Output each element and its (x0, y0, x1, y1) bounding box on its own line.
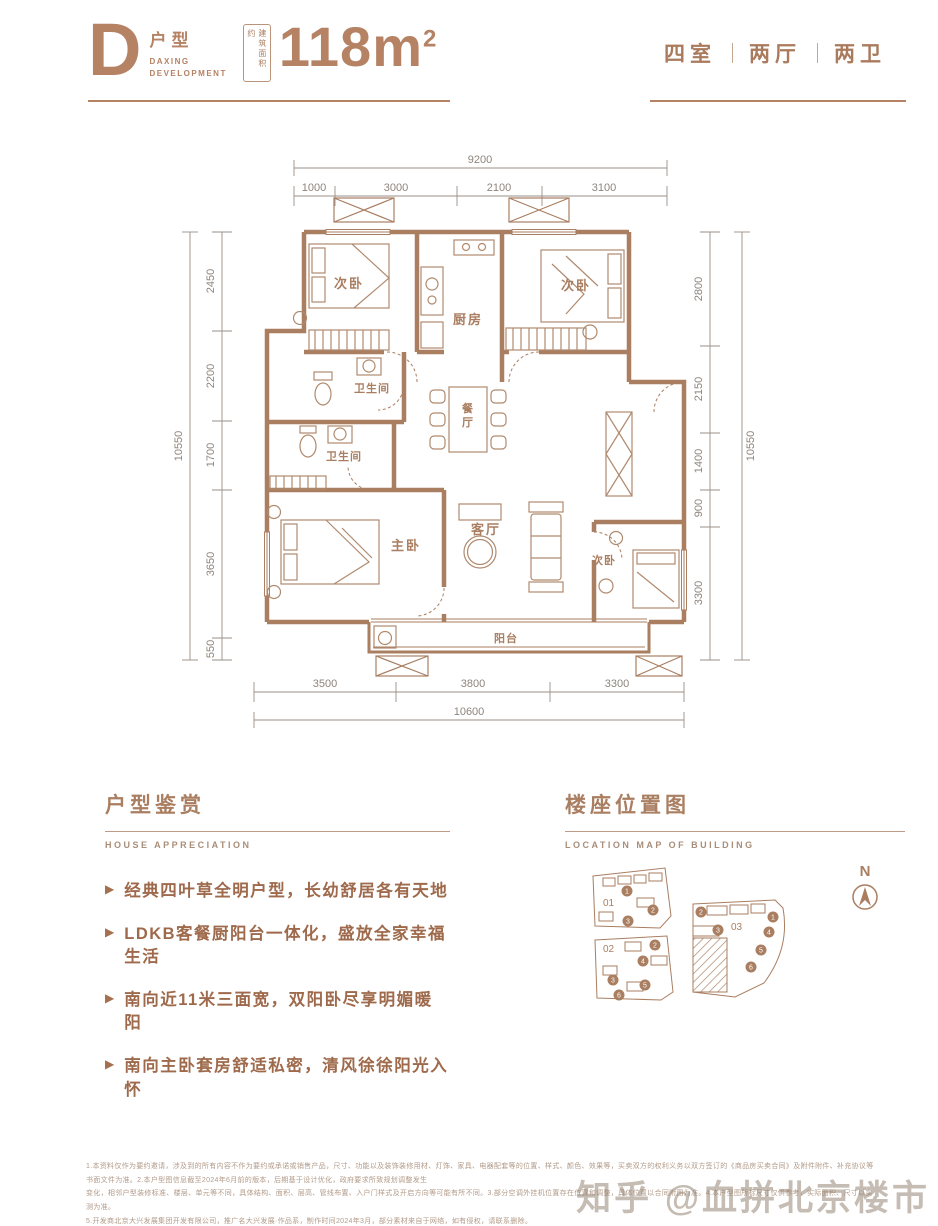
bullet-arrow-icon: ▶ (105, 989, 114, 1008)
parcel-01-label: 01 (603, 898, 615, 909)
area-value: 118m2 (279, 16, 438, 78)
dim-top-total: 9200 (468, 154, 492, 166)
appreciation-title: 户型鉴赏 (105, 789, 450, 819)
dim-right-4: 900 (693, 499, 705, 517)
bottom-sections: 户型鉴赏 HOUSE APPRECIATION ▶经典四叶草全明户型，长幼舒居各… (0, 789, 938, 1122)
room-dining-char1: 餐 (461, 401, 474, 415)
dim-right-2: 2150 (693, 377, 705, 401)
badge: 5 (643, 983, 647, 990)
room-bedroom-bottom-right: 次卧 (592, 553, 616, 567)
room-dining-char2: 厅 (462, 416, 474, 429)
badge: 2 (651, 908, 655, 915)
spec-rooms: 四室 (648, 38, 732, 68)
unit-letter: D (88, 16, 139, 84)
header: D 户型 DAXING DEVELOPMENT 建筑面积约 118m2 四室 两… (0, 0, 938, 118)
dim-top-3: 2100 (487, 182, 511, 194)
appreciation-point: ▶南向近11米三面宽，双阳卧尽享明媚暖阳 (105, 989, 450, 1035)
compass-north-label: N (860, 864, 871, 880)
spec-baths: 两卫 (818, 38, 902, 68)
dim-bottom-3: 3300 (605, 678, 629, 690)
point-text: 经典四叶草全明户型，长幼舒居各有天地 (124, 880, 448, 903)
dim-top-1: 1000 (302, 182, 326, 194)
dim-left-total: 10550 (173, 431, 185, 462)
location-rule (565, 831, 905, 832)
appreciation-point: ▶经典四叶草全明户型，长幼舒居各有天地 (105, 880, 450, 903)
floor-plan: 9200 1000 3000 2100 3100 10550 2450 2200… (0, 140, 938, 761)
floor-plan-svg: 9200 1000 3000 2100 3100 10550 2450 2200… (139, 140, 799, 756)
room-bath-upper: 卫生间 (354, 381, 390, 395)
room-balcony: 阳台 (494, 631, 518, 645)
brand-line2: DEVELOPMENT (149, 68, 226, 80)
badge: 3 (716, 928, 720, 935)
dim-right-total: 10550 (745, 431, 757, 462)
parcel-01-badges: 1 2 3 (622, 886, 659, 927)
brand-name: DAXING DEVELOPMENT (149, 56, 226, 80)
header-rule-left (88, 100, 450, 102)
dim-bottom-total: 10600 (454, 706, 485, 718)
dim-top-2: 3000 (384, 182, 408, 194)
dim-right-5: 3300 (693, 581, 705, 605)
dim-bottom-1: 3500 (313, 678, 337, 690)
point-text: 南向主卧套房舒适私密，清风徐徐阳光入怀 (124, 1055, 450, 1101)
header-rule-right (650, 100, 906, 102)
point-text: 南向近11米三面宽，双阳卧尽享明媚暖阳 (124, 989, 450, 1035)
room-master: 主卧 (391, 538, 421, 553)
area-badge: 建筑面积约 (243, 24, 271, 82)
area-superscript: 2 (423, 25, 437, 52)
badge: 3 (611, 978, 615, 985)
badge: 4 (767, 930, 771, 937)
point-text: LDKB客餐厨阳台一体化，盛放全家幸福生活 (124, 923, 450, 969)
compass-icon: N (853, 864, 877, 909)
bullet-arrow-icon: ▶ (105, 923, 114, 942)
brand-line1: DAXING (149, 56, 226, 68)
dim-right-1: 2800 (693, 277, 705, 301)
badge: 3 (626, 919, 630, 926)
room-bedroom-top-left: 次卧 (334, 276, 364, 291)
bullet-arrow-icon: ▶ (105, 880, 114, 899)
dim-left-1: 2450 (205, 269, 217, 293)
unit-type-labels: 户型 DAXING DEVELOPMENT (149, 26, 226, 80)
badge: 4 (641, 959, 645, 966)
parcel-02-label: 02 (603, 944, 615, 955)
parcel-03-label: 03 (731, 922, 743, 933)
badge: 2 (653, 943, 657, 950)
dims-right (700, 232, 750, 660)
room-spec: 四室 两厅 两卫 (648, 38, 902, 68)
room-bath-lower: 卫生间 (326, 449, 362, 463)
appreciation-points: ▶经典四叶草全明户型，长幼舒居各有天地 ▶LDKB客餐厨阳台一体化，盛放全家幸福… (105, 880, 450, 1102)
dim-left-5: 550 (205, 640, 217, 658)
appreciation-point: ▶南向主卧套房舒适私密，清风徐徐阳光入怀 (105, 1055, 450, 1101)
house-appreciation-section: 户型鉴赏 HOUSE APPRECIATION ▶经典四叶草全明户型，长幼舒居各… (105, 789, 450, 1122)
badge: 6 (749, 965, 753, 972)
dim-right-3: 1400 (693, 449, 705, 473)
dim-bottom-2: 3800 (461, 678, 485, 690)
appreciation-rule (105, 831, 450, 832)
site-map-svg: N 01 1 2 3 02 (565, 864, 905, 1049)
watermark: 知乎 @血拼北京楼市 (576, 1170, 930, 1221)
appreciation-subtitle: HOUSE APPRECIATION (105, 840, 450, 850)
dim-left-4: 3650 (205, 552, 217, 576)
room-kitchen: 厨房 (453, 312, 483, 327)
area-number: 118m (279, 15, 423, 78)
badge: 1 (625, 889, 629, 896)
badge: 5 (759, 948, 763, 955)
spec-halls: 两厅 (733, 38, 817, 68)
badge: 6 (617, 993, 621, 1000)
unit-title-group: D 户型 DAXING DEVELOPMENT 建筑面积约 118m2 (88, 16, 437, 84)
badge: 2 (699, 910, 703, 917)
room-bedroom-top-right: 次卧 (561, 278, 591, 293)
dim-top-4: 3100 (592, 182, 616, 194)
dim-left-2: 2200 (205, 364, 217, 388)
unit-type-cn: 户型 (149, 26, 226, 51)
location-map-section: 楼座位置图 LOCATION MAP OF BUILDING N 01 (565, 789, 905, 1122)
room-living: 客厅 (471, 522, 501, 537)
appreciation-point: ▶LDKB客餐厨阳台一体化，盛放全家幸福生活 (105, 923, 450, 969)
location-title: 楼座位置图 (565, 789, 905, 819)
badge: 1 (771, 915, 775, 922)
location-subtitle: LOCATION MAP OF BUILDING (565, 840, 905, 850)
bullet-arrow-icon: ▶ (105, 1055, 114, 1074)
dim-left-3: 1700 (205, 443, 217, 467)
furniture (268, 240, 680, 648)
